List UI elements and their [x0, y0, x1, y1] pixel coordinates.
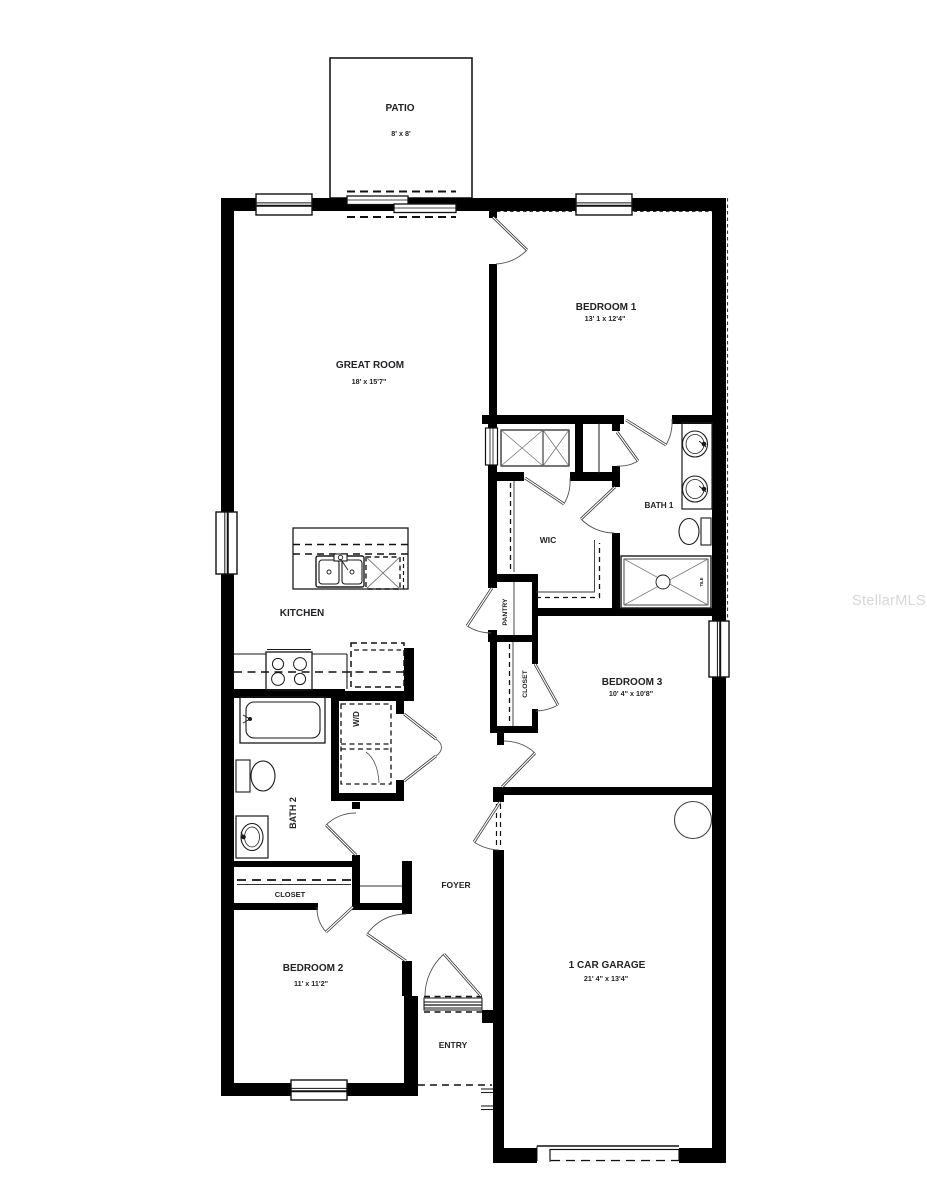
svg-text:BEDROOM 1: BEDROOM 1 [576, 302, 637, 313]
svg-text:BATH 1: BATH 1 [645, 501, 674, 510]
svg-text:8' x 8': 8' x 8' [391, 129, 411, 138]
svg-text:KITCHEN: KITCHEN [280, 608, 324, 619]
svg-text:CLOSET: CLOSET [522, 669, 529, 697]
svg-text:ENTRY: ENTRY [439, 1040, 468, 1050]
svg-text:13' 1 x 12'4": 13' 1 x 12'4" [585, 314, 626, 323]
svg-text:1 CAR GARAGE: 1 CAR GARAGE [569, 960, 646, 971]
svg-text:PATIO: PATIO [385, 103, 414, 114]
svg-text:11' x 11'2": 11' x 11'2" [294, 979, 328, 988]
svg-text:BEDROOM 3: BEDROOM 3 [602, 677, 663, 688]
svg-text:TILE: TILE [699, 577, 704, 586]
svg-text:PANTRY: PANTRY [502, 598, 509, 626]
svg-text:BATH 2: BATH 2 [288, 797, 298, 829]
svg-text:18' x 15'7": 18' x 15'7" [352, 377, 387, 386]
svg-text:WIC: WIC [540, 535, 557, 545]
svg-text:GREAT ROOM: GREAT ROOM [336, 360, 404, 371]
svg-text:W/D: W/D [352, 711, 361, 727]
svg-text:BEDROOM 2: BEDROOM 2 [283, 963, 344, 974]
svg-text:CLOSET: CLOSET [275, 890, 306, 899]
svg-text:FOYER: FOYER [441, 880, 470, 890]
svg-text:StellarMLS: StellarMLS [852, 593, 926, 609]
svg-text:10' 4" x 10'8": 10' 4" x 10'8" [609, 689, 653, 698]
svg-text:21' 4" x 13'4": 21' 4" x 13'4" [584, 974, 628, 983]
